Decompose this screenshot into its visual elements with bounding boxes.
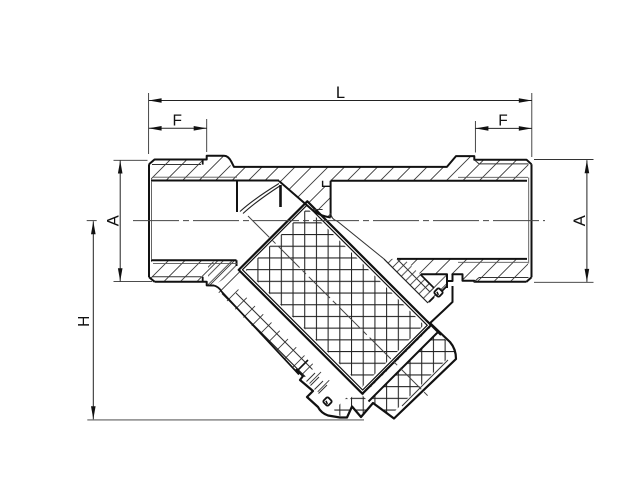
svg-text:F: F (498, 113, 507, 130)
svg-text:F: F (172, 113, 181, 130)
svg-text:H: H (76, 316, 93, 327)
svg-text:L: L (336, 84, 345, 102)
svg-text:A: A (571, 215, 589, 226)
svg-text:A: A (104, 215, 122, 226)
